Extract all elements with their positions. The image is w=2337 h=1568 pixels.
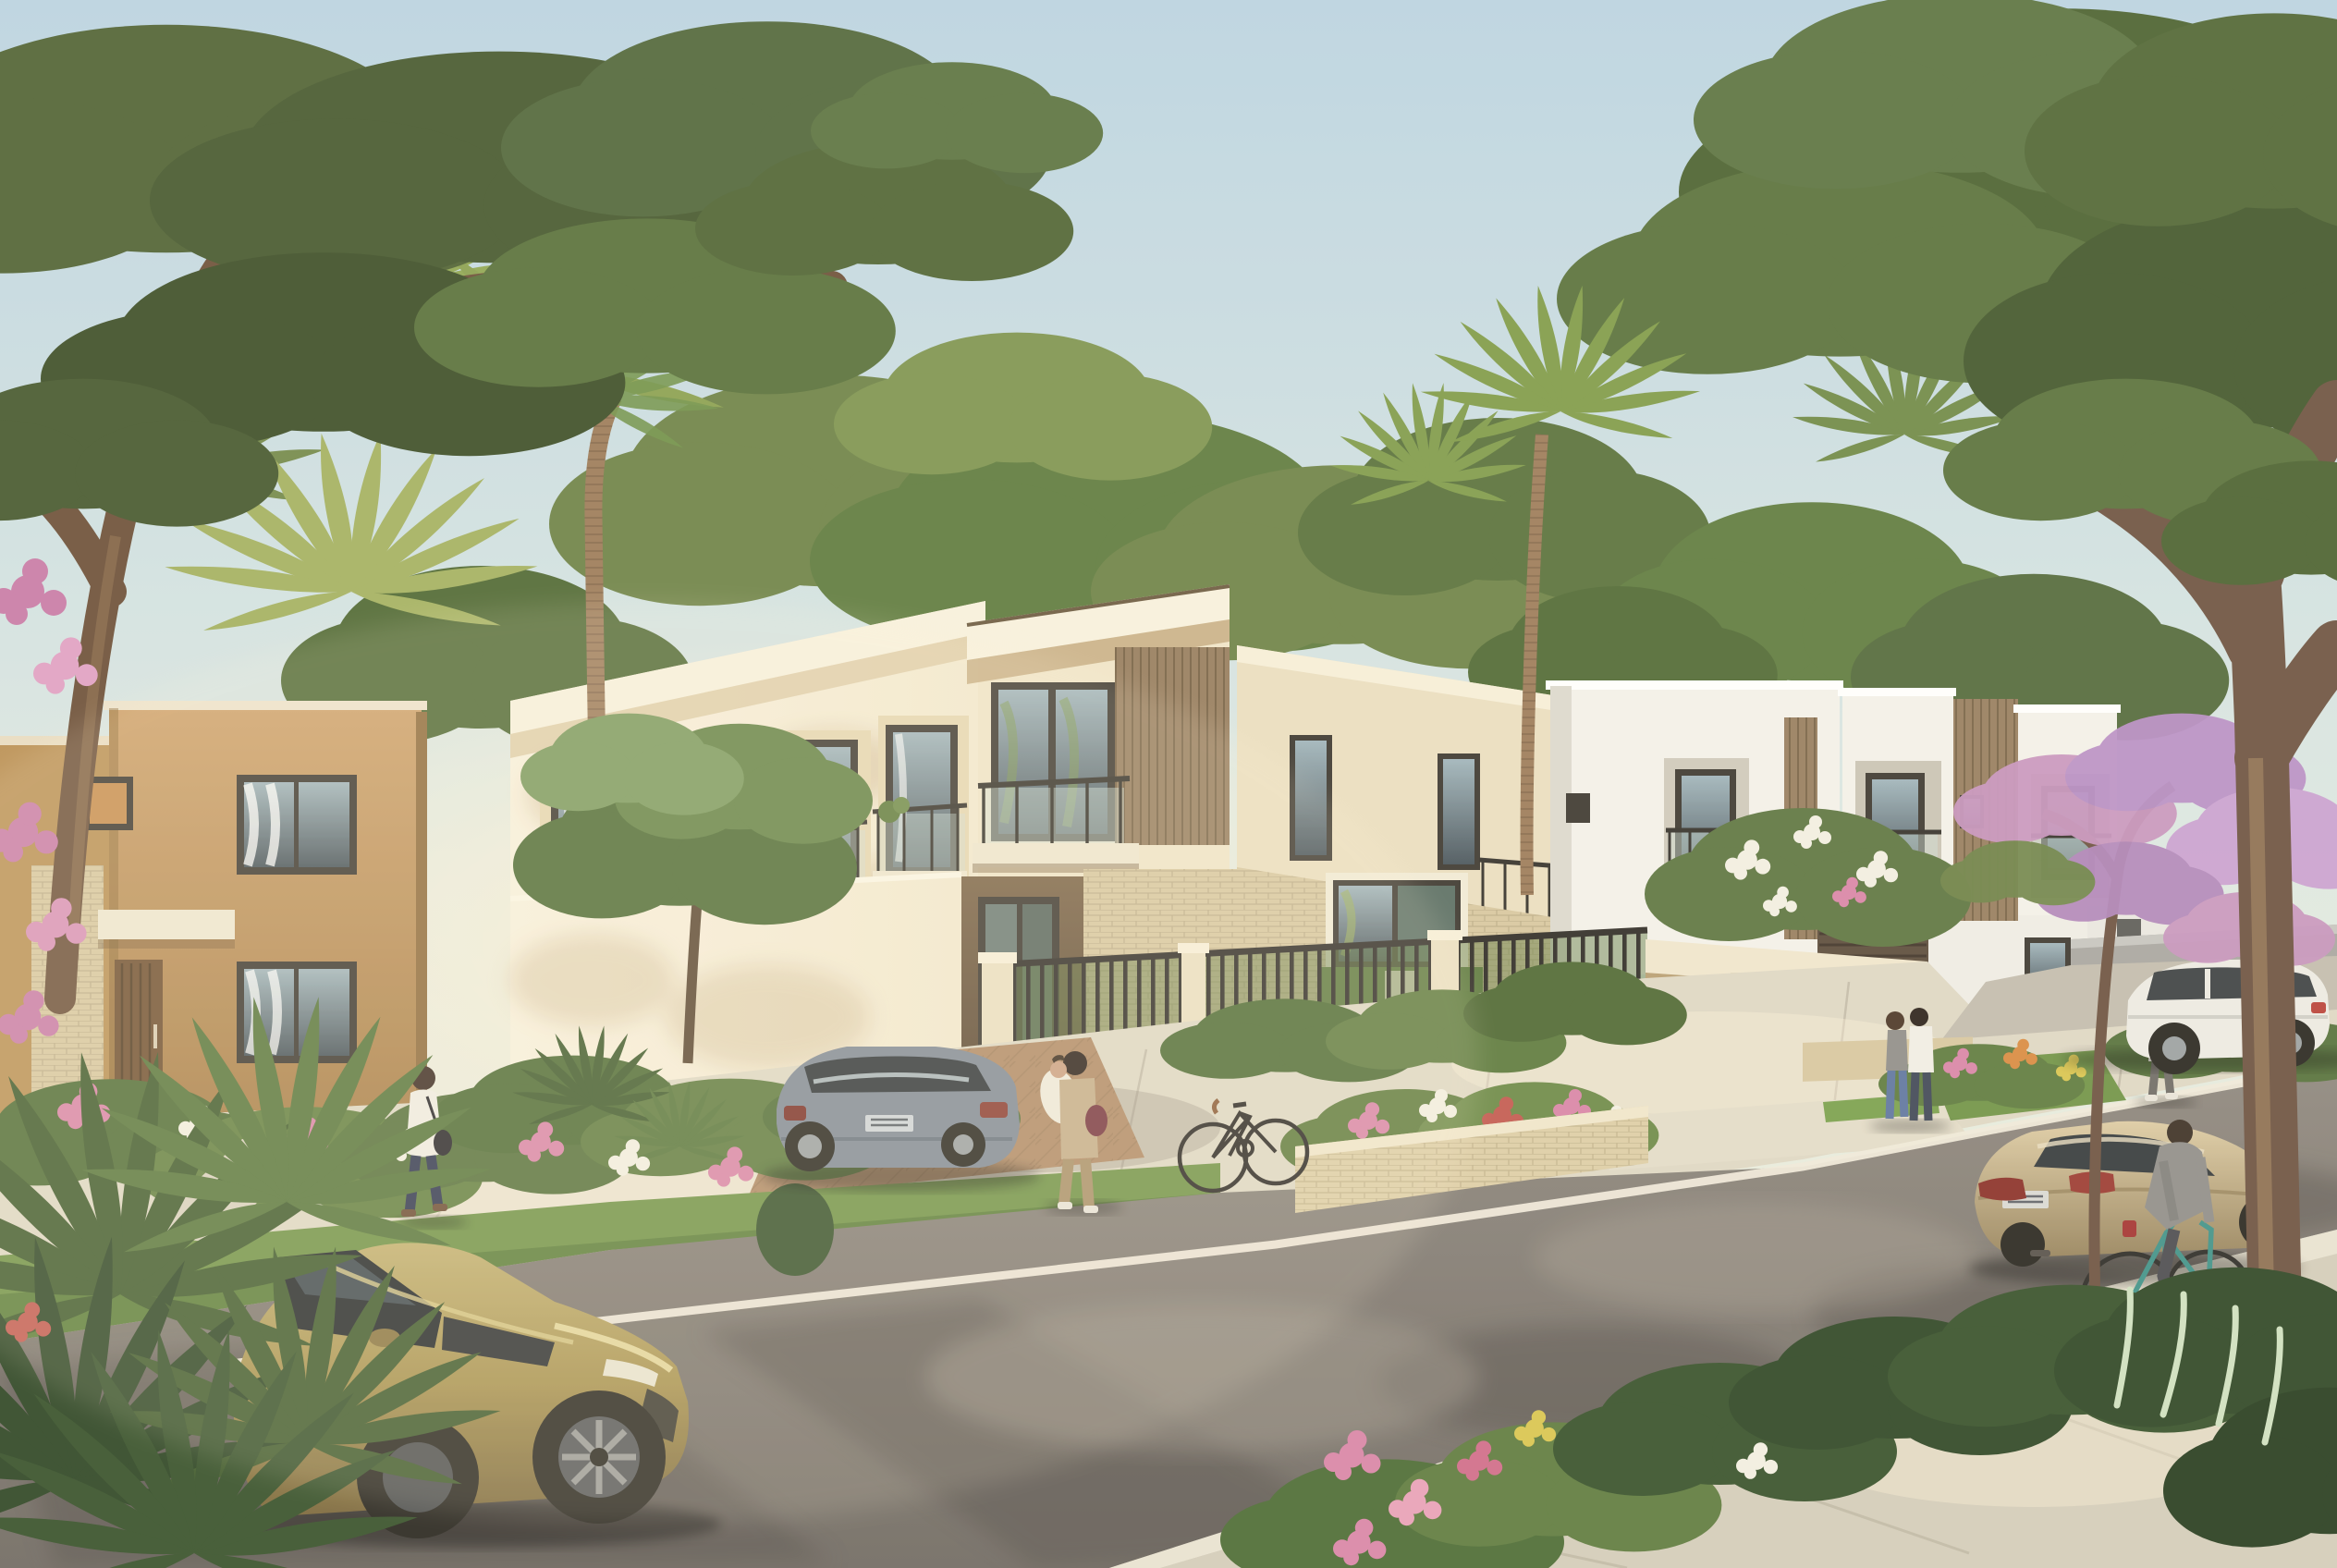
- warm-light-overlay: [0, 0, 2337, 1568]
- render-canvas: [0, 0, 2337, 1568]
- scene-svg: [0, 0, 2337, 1568]
